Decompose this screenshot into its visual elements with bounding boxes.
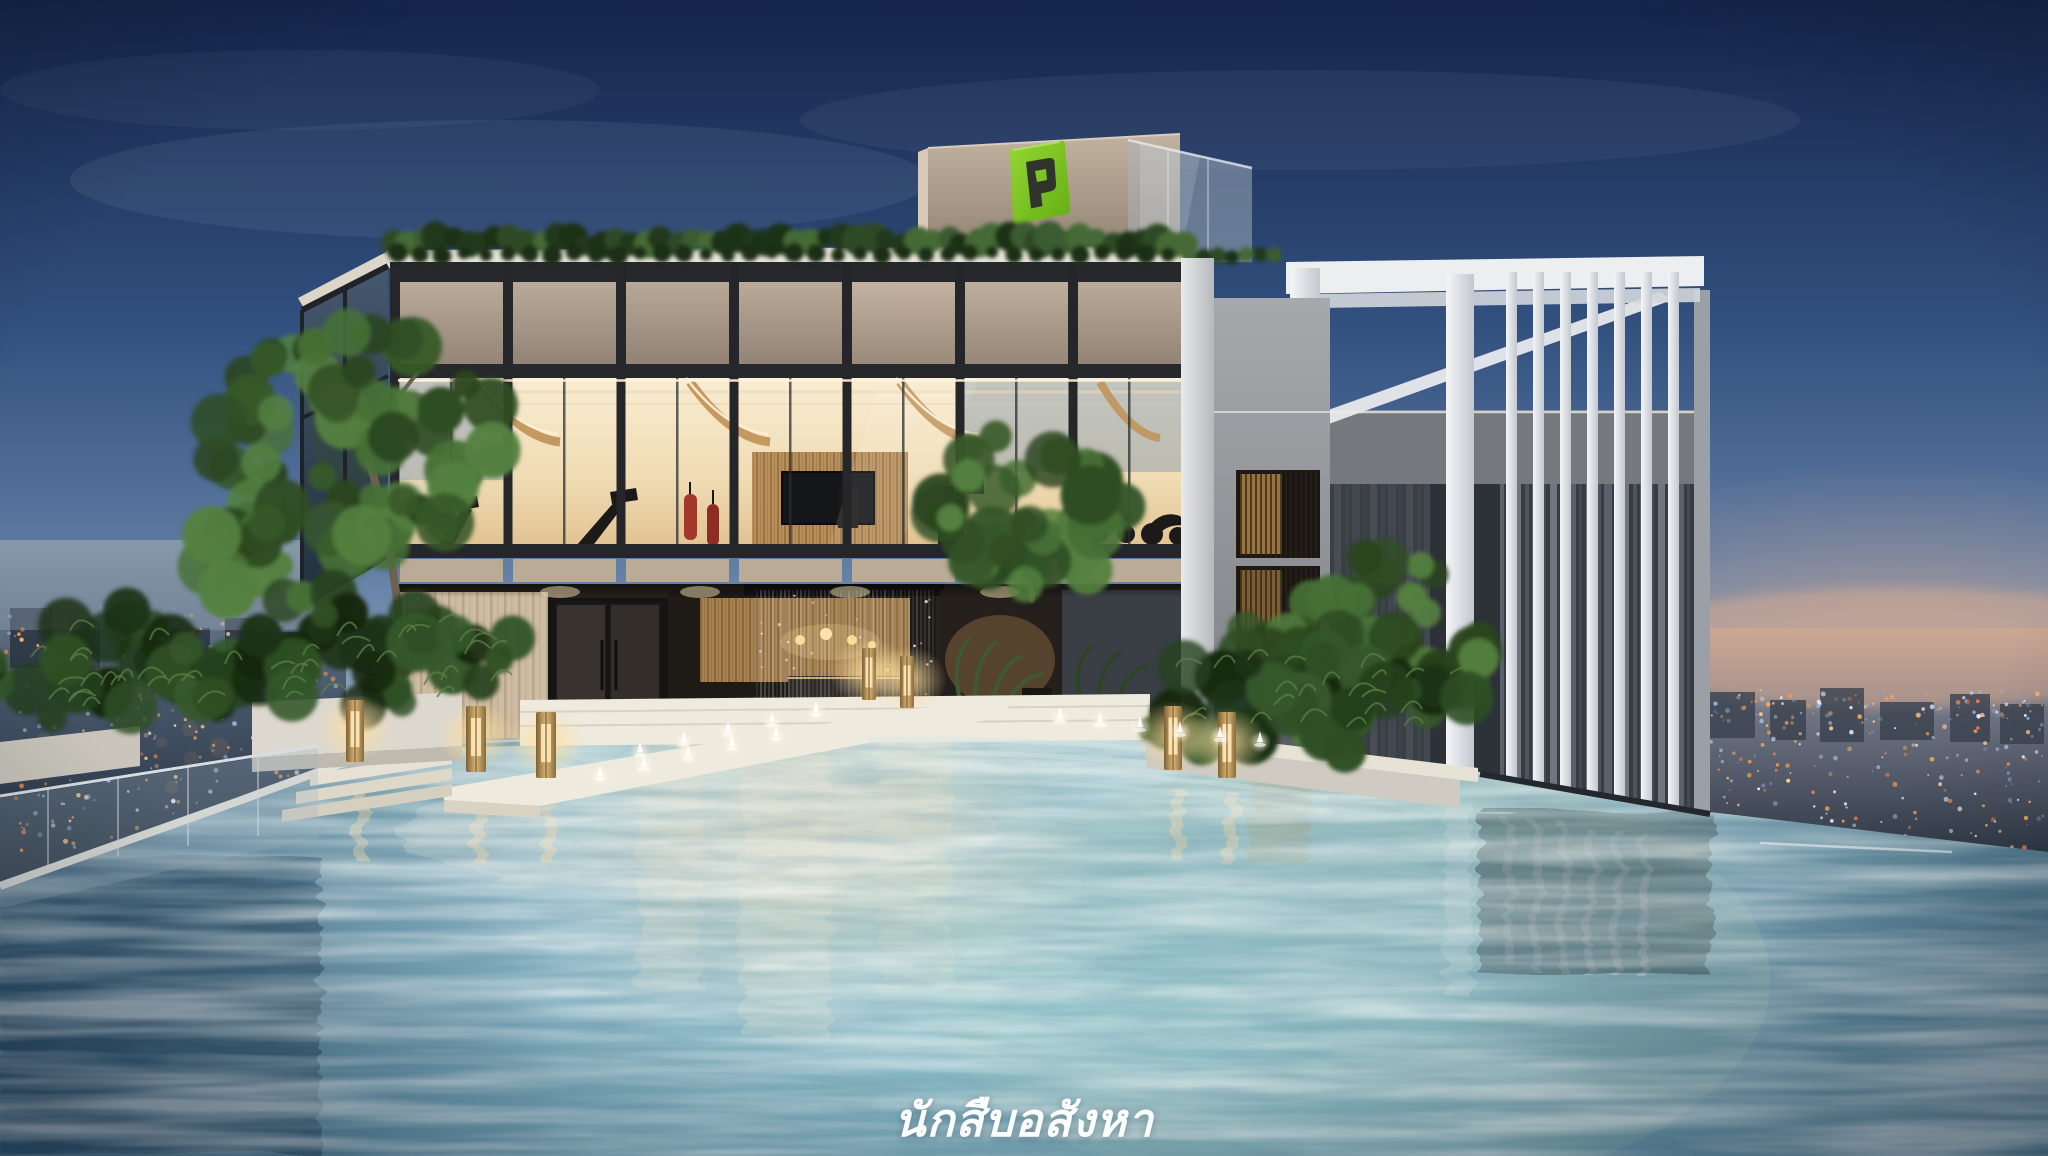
dusk-pool-rendering: PRUKSA (0, 0, 2048, 1156)
vignette (0, 0, 2048, 1156)
rendering-canvas: PRUKSA (0, 0, 2048, 1156)
watermark-text: นักสืบอสังหา (894, 1084, 1154, 1156)
